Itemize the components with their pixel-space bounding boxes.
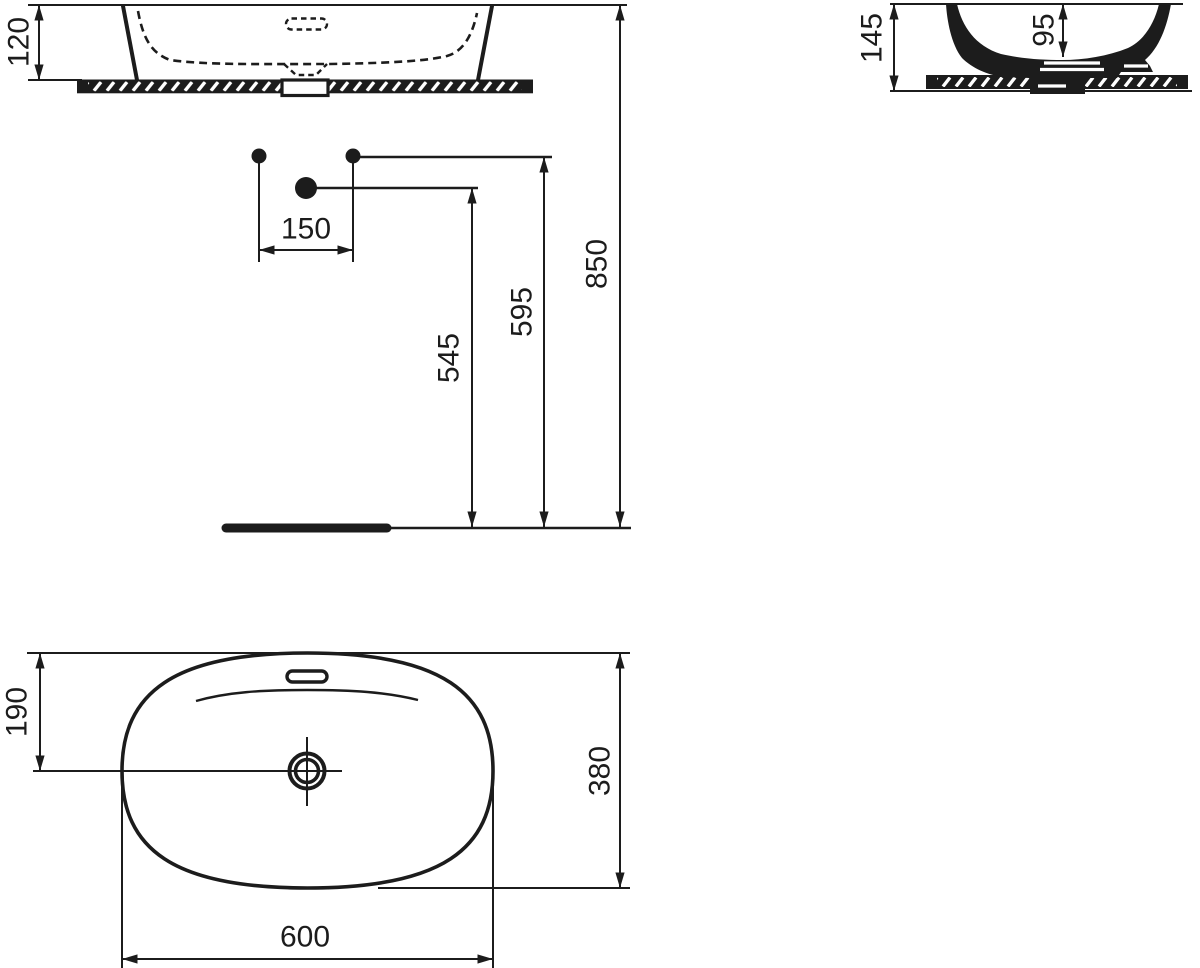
dim-label-595: 595 — [506, 287, 539, 337]
washbasin-dimension-drawing: 120 145 95 — [0, 0, 1200, 968]
overflow-slot-plan — [287, 671, 327, 682]
front-basin-left-wall — [123, 6, 137, 80]
dim-label-190: 190 — [1, 687, 34, 737]
dim-label-120: 120 — [3, 17, 36, 67]
front-countertop-right-cap — [522, 81, 532, 93]
front-basin-right-wall — [478, 6, 492, 80]
basin-inner-edge-arc — [196, 690, 418, 701]
front-drain-recess-dashed — [284, 64, 327, 75]
dim-label-850: 850 — [581, 239, 614, 289]
dimension-drain-offset-190: 190 — [1, 653, 41, 771]
overflow-slot-dashed — [286, 19, 327, 30]
technical-drawing-page: 120 145 95 — [0, 0, 1200, 968]
dimension-total-height-145: 145 — [856, 4, 895, 91]
side-countertop-left-cap — [927, 76, 937, 88]
front-inner-bowl-dashed-contour — [138, 11, 477, 64]
dim-label-600: 600 — [280, 921, 330, 954]
front-view: 120 — [3, 5, 628, 96]
dimension-bowl-depth-95: 95 — [1028, 4, 1064, 57]
dimension-basin-depth-380: 380 — [378, 653, 630, 888]
dimension-basin-width-600: 600 — [122, 778, 493, 968]
dimension-rim-height-850: 850 — [581, 5, 621, 527]
side-view: 145 95 — [856, 4, 1193, 94]
dim-label-150: 150 — [281, 213, 331, 246]
dimension-basin-height-120: 120 — [3, 5, 40, 80]
dimension-spout-height-545: 545 — [433, 188, 473, 527]
front-countertop-left-cap — [78, 81, 88, 93]
faucet-hole-marker-left — [252, 149, 267, 164]
dim-label-145: 145 — [856, 13, 889, 63]
dim-label-380: 380 — [584, 746, 617, 796]
dim-label-545: 545 — [433, 333, 466, 383]
front-drain-cutout — [282, 80, 328, 96]
top-view: 190 380 600 — [1, 653, 631, 968]
dim-label-95: 95 — [1028, 13, 1061, 46]
dimension-hole-spacing-150: 150 — [259, 213, 353, 251]
side-countertop-right-cap — [1177, 76, 1187, 88]
dimension-hole-height-595: 595 — [506, 157, 545, 527]
